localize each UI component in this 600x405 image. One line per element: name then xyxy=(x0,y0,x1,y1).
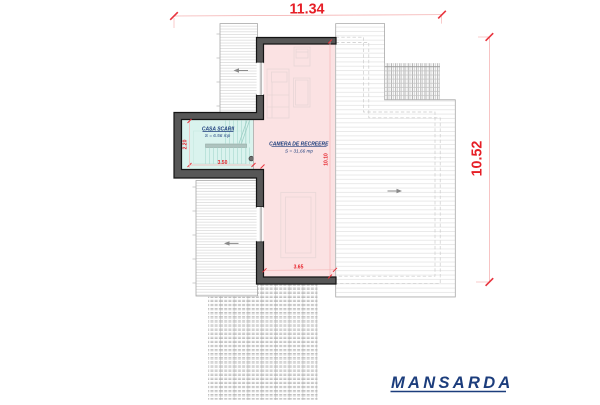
svg-text:3.50: 3.50 xyxy=(218,160,228,166)
svg-text:11.34: 11.34 xyxy=(290,2,325,18)
svg-text:MANSARDA: MANSARDA xyxy=(391,374,514,392)
svg-text:S = 6.56 mp: S = 6.56 mp xyxy=(205,133,231,138)
svg-text:10.52: 10.52 xyxy=(469,141,485,177)
svg-text:S = 31,66 mp: S = 31,66 mp xyxy=(285,148,313,153)
svg-text:10.10: 10.10 xyxy=(324,153,330,166)
svg-text:2.20: 2.20 xyxy=(183,139,189,149)
svg-text:3.65: 3.65 xyxy=(294,264,304,270)
